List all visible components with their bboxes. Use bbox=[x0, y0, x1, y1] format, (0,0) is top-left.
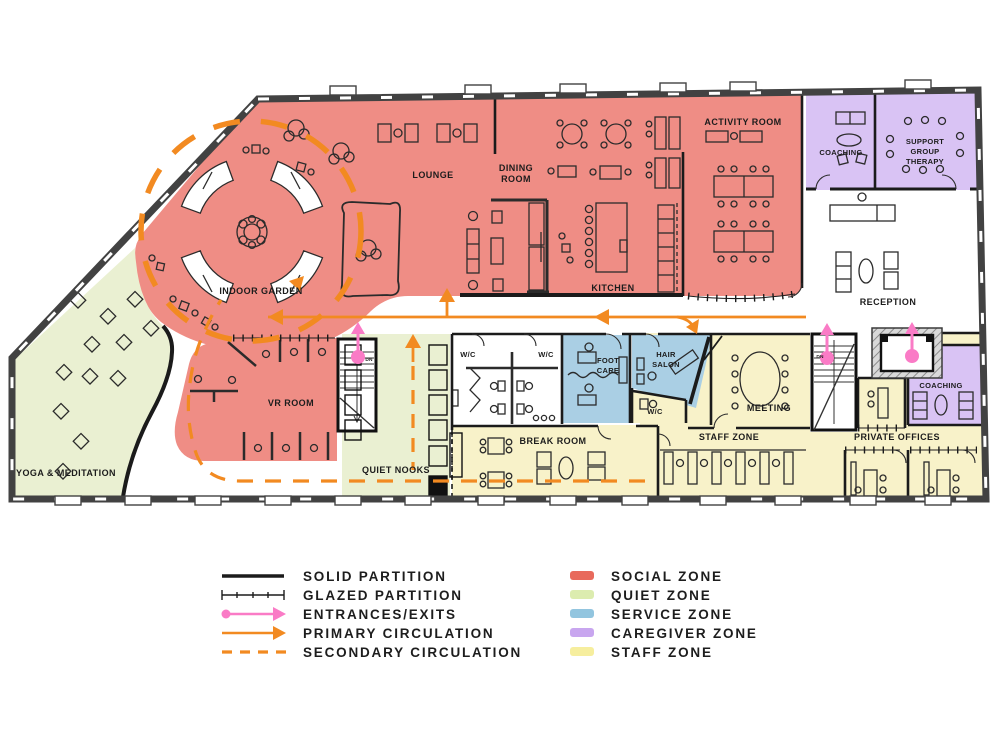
legend-zone-staff: STAFF ZONE bbox=[570, 645, 713, 660]
legend-zone-service: SERVICE ZONE bbox=[570, 607, 733, 622]
room-label-coaching-lower: COACHING bbox=[919, 381, 962, 390]
legend-label-caregiver-zone: CAREGIVER ZONE bbox=[611, 626, 758, 641]
legend-label-service-zone: SERVICE ZONE bbox=[611, 607, 733, 622]
room-label-wc-east: W/C bbox=[538, 350, 554, 359]
stair-west-dn-label: DN bbox=[365, 357, 373, 363]
room-label-wc-west: W/C bbox=[460, 350, 476, 359]
legend-label-glazed-partition: GLAZED PARTITION bbox=[303, 588, 463, 603]
room-label-dining-2: ROOM bbox=[501, 174, 531, 184]
legend-symbol-entrances-exits: ENTRANCES/EXITS bbox=[222, 607, 457, 622]
room-label-foot-1: FOOT bbox=[597, 356, 619, 365]
room-label-wc-staff: W/C bbox=[647, 407, 663, 416]
legend-symbol-solid-partition: SOLID PARTITION bbox=[222, 569, 447, 584]
legend-symbol-primary-circulation: PRIMARY CIRCULATION bbox=[222, 626, 494, 641]
wc-block bbox=[452, 334, 562, 425]
legend-zone-social: SOCIAL ZONE bbox=[570, 569, 723, 584]
legend-label-social-zone: SOCIAL ZONE bbox=[611, 569, 723, 584]
stair-east-dn-label: DN bbox=[816, 354, 824, 360]
legend-zone-caregiver: CAREGIVER ZONE bbox=[570, 626, 758, 641]
room-label-vr-room: VR ROOM bbox=[268, 398, 314, 408]
legend-label-solid-partition: SOLID PARTITION bbox=[303, 569, 447, 584]
room-label-salon-2: SALON bbox=[652, 360, 680, 369]
floor-plan-page: INDOOR GARDEN LOUNGE DINING ROOM KITCHEN… bbox=[0, 0, 1000, 746]
room-label-activity-room: ACTIVITY ROOM bbox=[704, 117, 781, 127]
room-label-break-room: BREAK ROOM bbox=[520, 436, 587, 446]
zone-service-foot-care bbox=[563, 335, 630, 423]
room-label-foot-2: CARE bbox=[597, 366, 619, 375]
legend-zone-quiet: QUIET ZONE bbox=[570, 588, 712, 603]
legend-symbol-secondary-circulation: SECONDARY CIRCULATION bbox=[222, 645, 522, 660]
stair-east bbox=[812, 334, 856, 430]
room-label-dining-1: DINING bbox=[499, 163, 533, 173]
room-label-support-2: GROUP bbox=[910, 147, 939, 156]
room-label-salon-1: HAIR bbox=[656, 350, 676, 359]
room-label-private-offices: PRIVATE OFFICES bbox=[854, 432, 940, 442]
floor-plan-canvas: INDOOR GARDEN LOUNGE DINING ROOM KITCHEN… bbox=[0, 0, 1000, 746]
legend-label-entrances-exits: ENTRANCES/EXITS bbox=[303, 607, 457, 622]
room-label-kitchen: KITCHEN bbox=[591, 283, 634, 293]
room-label-staff-zone: STAFF ZONE bbox=[699, 432, 759, 442]
room-label-yoga: YOGA & MEDITATION bbox=[16, 468, 116, 478]
room-label-reception: RECEPTION bbox=[860, 297, 917, 307]
legend-label-staff-zone: STAFF ZONE bbox=[611, 645, 713, 660]
legend-symbol-glazed-partition: GLAZED PARTITION bbox=[222, 588, 463, 603]
room-label-coaching-upper: COACHING bbox=[819, 148, 862, 157]
room-label-indoor-garden: INDOOR GARDEN bbox=[219, 286, 302, 296]
room-label-quiet-nooks: QUIET NOOKS bbox=[362, 465, 430, 475]
legend-label-quiet-zone: QUIET ZONE bbox=[611, 588, 712, 603]
legend: SOLID PARTITION GLAZED PARTITION ENTRANC… bbox=[222, 569, 758, 660]
room-label-support-3: THERAPY bbox=[906, 157, 944, 166]
legend-label-secondary-circulation: SECONDARY CIRCULATION bbox=[303, 645, 522, 660]
room-label-lounge: LOUNGE bbox=[412, 170, 453, 180]
room-label-support-1: SUPPORT bbox=[906, 137, 944, 146]
legend-label-primary-circulation: PRIMARY CIRCULATION bbox=[303, 626, 494, 641]
room-label-meeting: MEETING bbox=[747, 403, 791, 413]
